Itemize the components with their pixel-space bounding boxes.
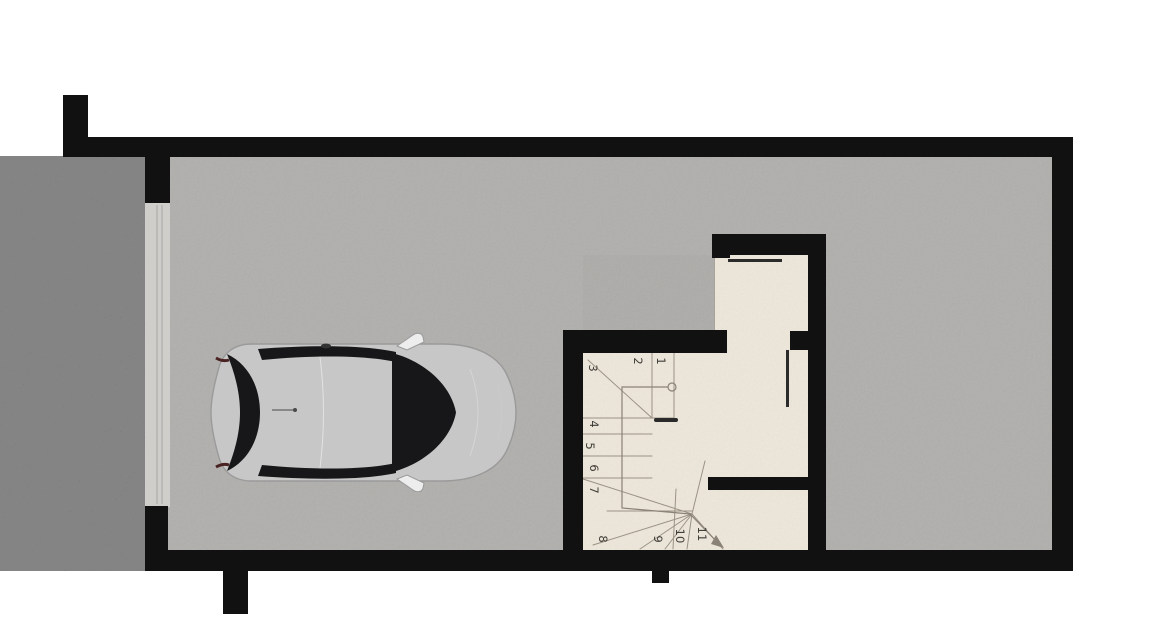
stair-hall-floor [583,255,808,550]
step-number: 11 [695,527,709,542]
stair-floor-texture [583,255,808,550]
asphalt-texture [0,156,145,571]
floor-plan-svg: 1 2 3 4 5 6 7 8 9 10 11 [0,0,1170,631]
step-number: 4 [587,420,601,427]
wall-garage-door-jamb-top [145,157,170,203]
floor-plan-page: 1 2 3 4 5 6 7 8 9 10 11 [0,0,1170,631]
step-number: 3 [586,364,600,371]
step-number: 8 [596,535,610,542]
wall-bottom-stub-center [652,571,669,583]
wall-garage-door-jamb-bottom [145,506,168,571]
wall-right [1052,157,1073,571]
wall-bottom [168,550,1073,571]
wall-bottom-stub-left [223,571,248,614]
wall-stair-left [563,353,583,550]
step-number: 7 [587,486,601,493]
wall-door-stub [790,331,808,350]
stair-door-leaf [786,350,789,407]
wall-vestibule-jamb [712,250,730,258]
car [211,333,516,491]
step-number: 10 [673,529,687,544]
driveway-asphalt [0,156,145,571]
entry-door-leaf [728,259,782,262]
wall-stair-right [808,255,826,550]
step-number: 1 [654,357,668,364]
garage-door [145,202,170,507]
wall-top [63,137,1073,157]
step-number: 5 [583,442,597,449]
step-number: 6 [587,464,601,471]
wall-top-left-stub [63,95,88,139]
car-interior-dot [293,408,297,412]
wall-stair-top [563,330,727,353]
step-number: 9 [651,535,665,542]
step-number: 2 [631,357,645,364]
wall-stair-mid [708,477,808,490]
car-fin-antenna [321,344,331,349]
